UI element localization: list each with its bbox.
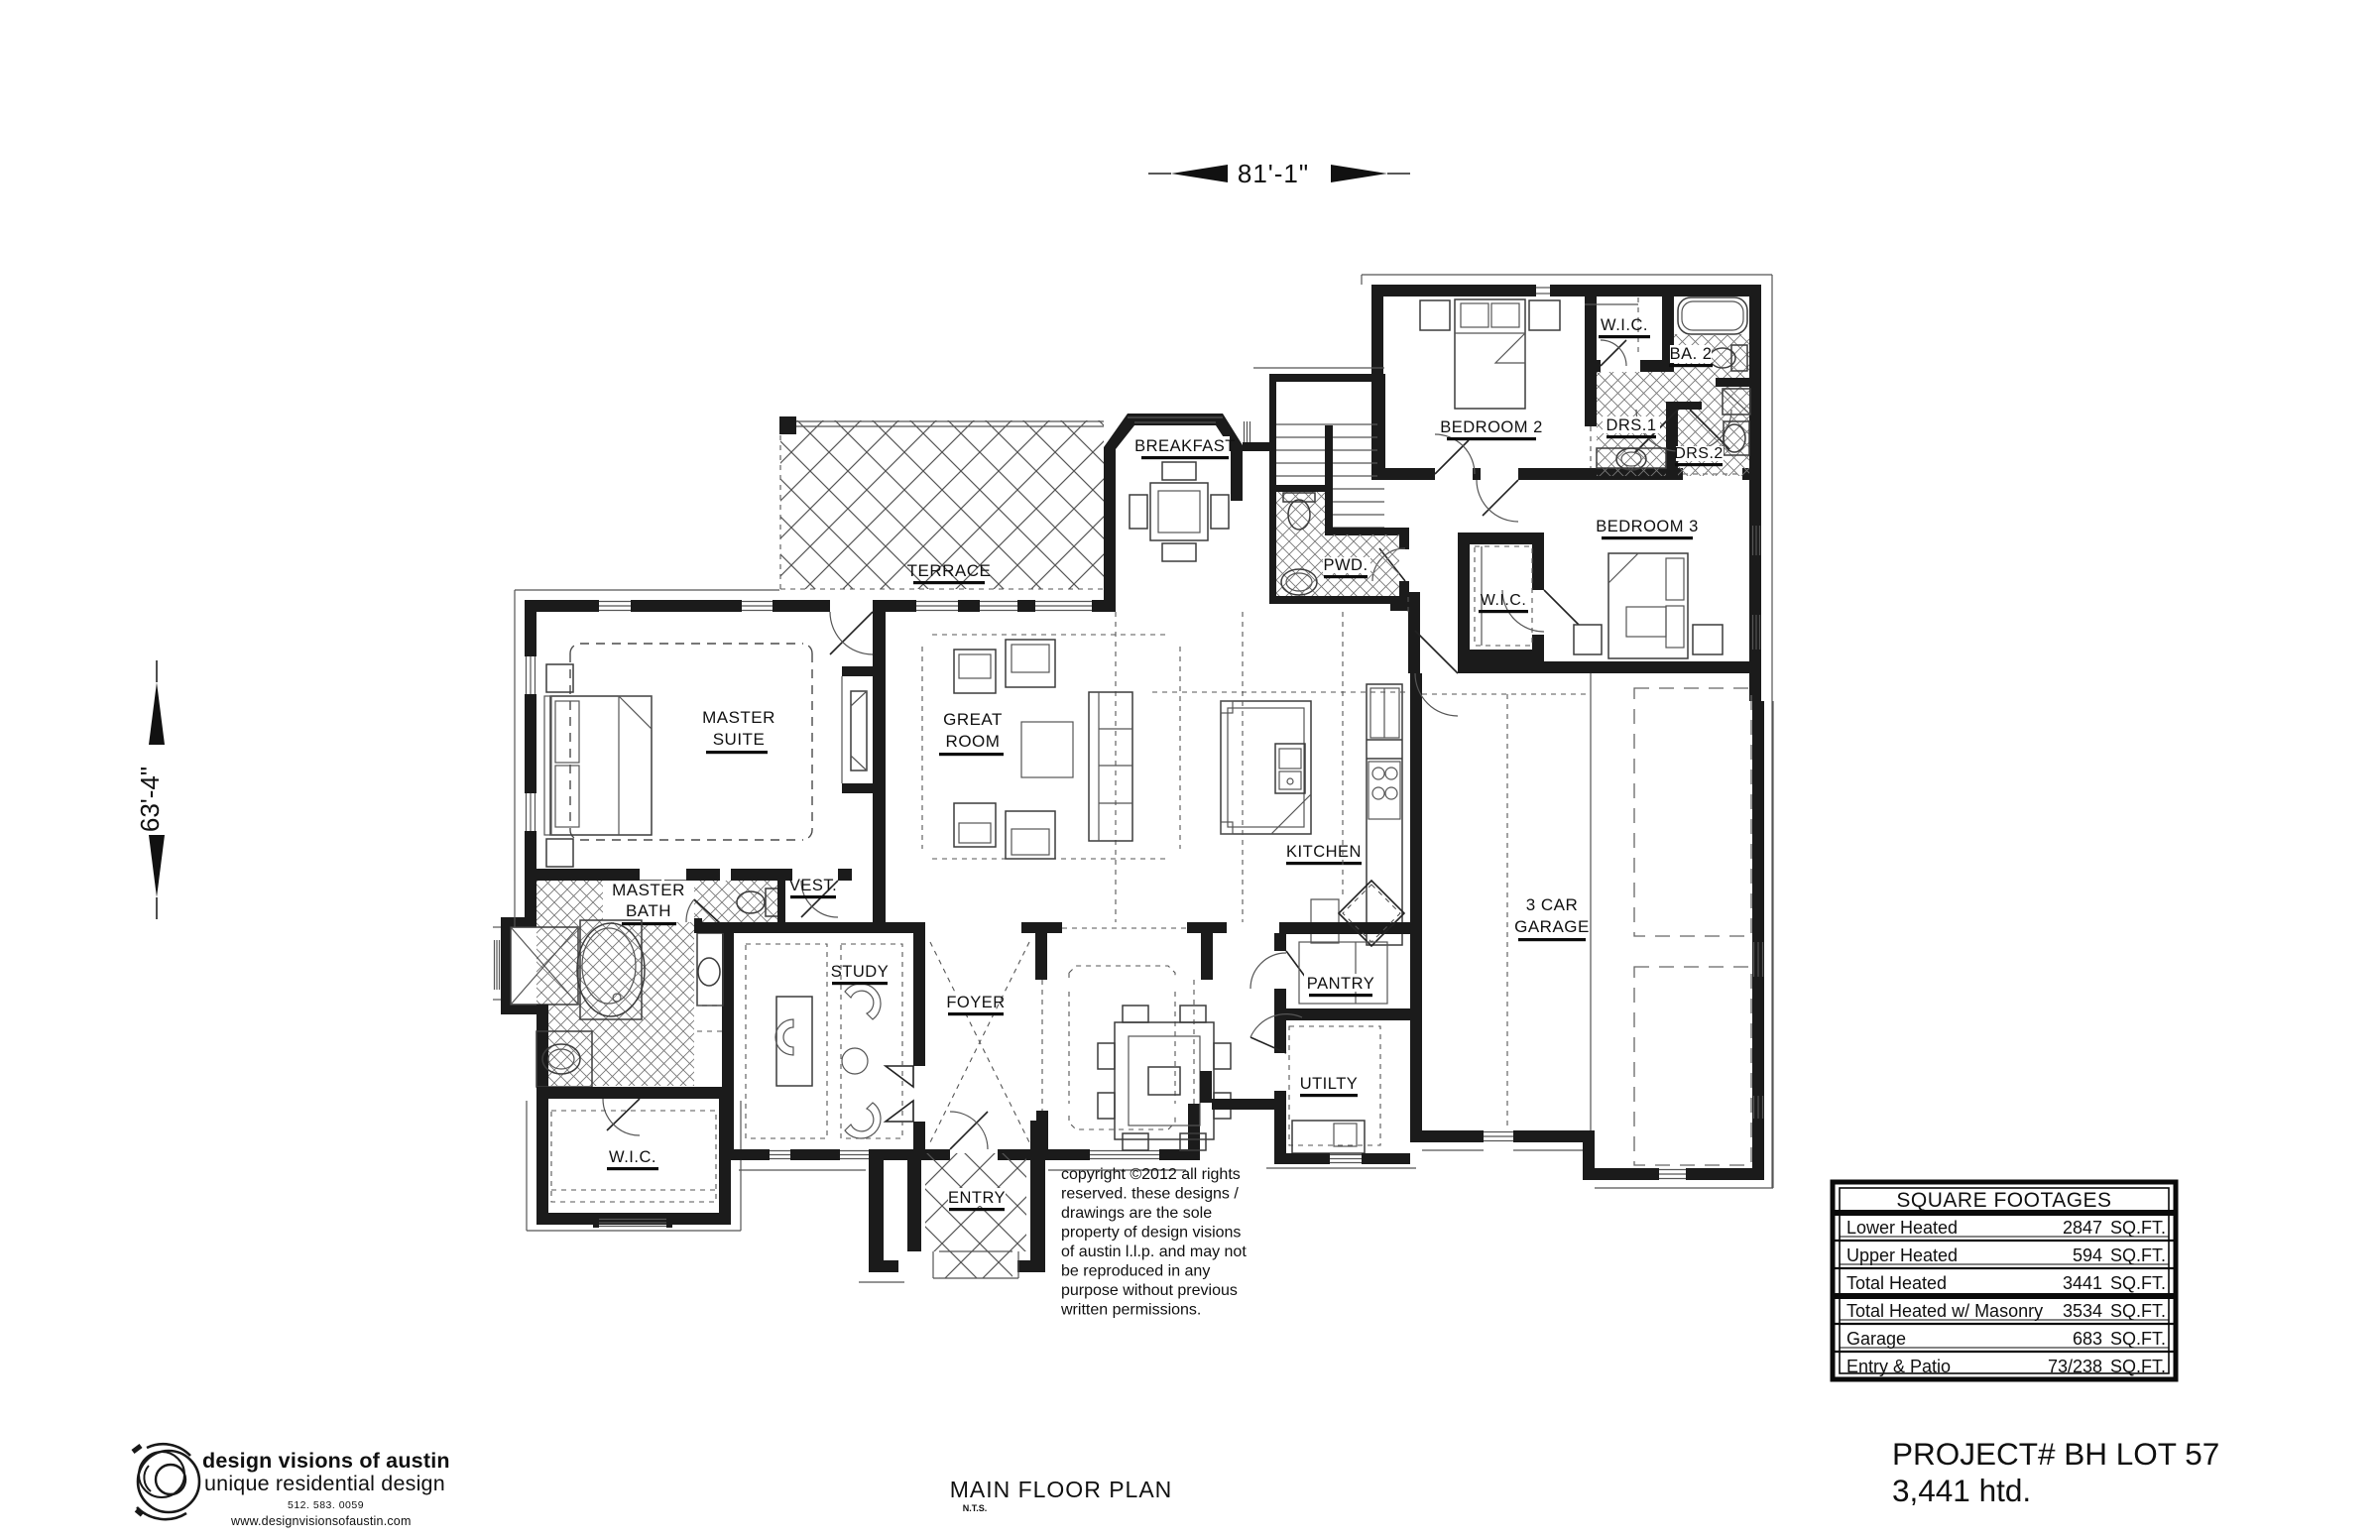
svg-text:ENTRY: ENTRY (948, 1189, 1006, 1207)
svg-text:be reproduced in any: be reproduced in any (1061, 1263, 1210, 1280)
svg-text:3441: 3441 (2063, 1273, 2102, 1293)
svg-text:N.T.S.: N.T.S. (963, 1503, 988, 1513)
svg-text:PANTRY: PANTRY (1307, 975, 1374, 993)
svg-text:512. 583. 0059: 512. 583. 0059 (288, 1499, 364, 1511)
svg-text:SQ.FT.: SQ.FT. (2110, 1245, 2166, 1265)
svg-text:Upper Heated: Upper Heated (1846, 1245, 1958, 1265)
svg-text:KITCHEN: KITCHEN (1286, 843, 1362, 861)
svg-text:reserved. these designs /: reserved. these designs / (1061, 1186, 1239, 1203)
svg-text:SQUARE FOOTAGES: SQUARE FOOTAGES (1896, 1189, 2111, 1212)
svg-text:Lower Heated: Lower Heated (1846, 1218, 1958, 1238)
svg-text:design visions of austin: design visions of austin (202, 1449, 450, 1473)
svg-text:STUDY: STUDY (831, 963, 889, 981)
svg-text:BEDROOM 2: BEDROOM 2 (1440, 418, 1543, 436)
svg-text:BA. 2: BA. 2 (1670, 345, 1713, 363)
svg-text:MASTER: MASTER (612, 881, 685, 899)
svg-text:DRS.1: DRS.1 (1606, 416, 1656, 434)
svg-text:W.I.C.: W.I.C. (609, 1148, 656, 1166)
svg-text:W.I.C.: W.I.C. (1601, 316, 1648, 334)
svg-text:purpose without previous: purpose without previous (1061, 1282, 1238, 1299)
svg-text:3,441 htd.: 3,441 htd. (1892, 1473, 2031, 1508)
svg-text:81'-1": 81'-1" (1238, 159, 1309, 188)
svg-text:73/238: 73/238 (2048, 1357, 2102, 1376)
svg-text:unique residential design: unique residential design (204, 1472, 445, 1495)
svg-text:copyright ©2012 all rights: copyright ©2012 all rights (1061, 1166, 1241, 1183)
svg-text:drawings are the sole: drawings are the sole (1061, 1205, 1212, 1222)
svg-text:property of design visions: property of design visions (1061, 1225, 1241, 1242)
svg-text:Entry & Patio: Entry & Patio (1846, 1357, 1951, 1376)
svg-text:Total Heated w/ Masonry: Total Heated w/ Masonry (1846, 1301, 2043, 1321)
svg-text:written permissions.: written permissions. (1060, 1302, 1201, 1319)
svg-text:PWD.: PWD. (1323, 556, 1368, 574)
svg-text:2847: 2847 (2063, 1218, 2102, 1238)
svg-text:FOYER: FOYER (946, 994, 1005, 1011)
svg-text:VEST.: VEST. (789, 877, 837, 894)
svg-text:SQ.FT.: SQ.FT. (2110, 1301, 2166, 1321)
svg-text:BREAKFAST: BREAKFAST (1134, 437, 1236, 455)
svg-text:SQ.FT.: SQ.FT. (2110, 1329, 2166, 1349)
svg-text:DRS.2: DRS.2 (1674, 445, 1724, 462)
svg-text:Total Heated: Total Heated (1846, 1273, 1947, 1293)
svg-text:SQ.FT.: SQ.FT. (2110, 1357, 2166, 1376)
svg-text:UTILTY: UTILTY (1300, 1075, 1359, 1093)
svg-text:3534: 3534 (2063, 1301, 2102, 1321)
svg-text:SQ.FT.: SQ.FT. (2110, 1273, 2166, 1293)
svg-text:SUITE: SUITE (713, 730, 766, 749)
svg-text:BATH: BATH (626, 901, 671, 920)
svg-text:PROJECT# BH LOT 57: PROJECT# BH LOT 57 (1892, 1436, 2219, 1472)
svg-text:TERRACE: TERRACE (907, 561, 992, 580)
svg-text:594: 594 (2073, 1245, 2102, 1265)
svg-text:MAIN FLOOR PLAN: MAIN FLOOR PLAN (950, 1477, 1173, 1502)
svg-text:683: 683 (2073, 1329, 2102, 1349)
svg-text:GREAT: GREAT (943, 710, 1003, 729)
svg-text:63'-4": 63'-4" (135, 767, 165, 832)
svg-text:www.designvisionsofaustin.com: www.designvisionsofaustin.com (230, 1514, 412, 1528)
svg-text:W.I.C.: W.I.C. (1481, 592, 1527, 609)
svg-text:ROOM: ROOM (946, 732, 1001, 751)
svg-text:GARAGE: GARAGE (1514, 917, 1590, 936)
svg-text:MASTER: MASTER (702, 708, 775, 727)
svg-text:Garage: Garage (1846, 1329, 1906, 1349)
svg-text:of austin l.l.p. and may not: of austin l.l.p. and may not (1061, 1244, 1247, 1260)
svg-text:3 CAR: 3 CAR (1526, 895, 1579, 914)
svg-text:BEDROOM 3: BEDROOM 3 (1596, 518, 1699, 535)
svg-text:SQ.FT.: SQ.FT. (2110, 1218, 2166, 1238)
